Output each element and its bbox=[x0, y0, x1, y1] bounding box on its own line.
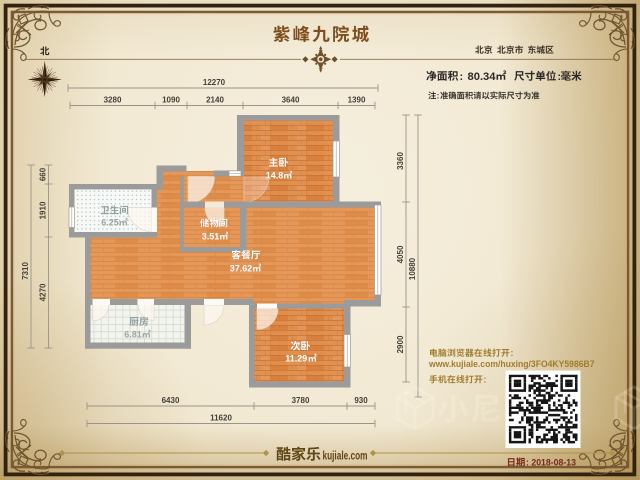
svg-text::: : bbox=[558, 71, 562, 83]
svg-text:80.34: 80.34 bbox=[468, 71, 497, 83]
svg-text:12270: 12270 bbox=[203, 78, 226, 87]
svg-text:1910: 1910 bbox=[39, 201, 48, 219]
svg-text:6.25: 6.25 bbox=[101, 218, 119, 228]
svg-text:: 2018-08-13: : 2018-08-13 bbox=[526, 457, 576, 468]
svg-text:1390: 1390 bbox=[348, 96, 366, 105]
svg-text:4270: 4270 bbox=[39, 283, 48, 301]
svg-text:660: 660 bbox=[39, 167, 48, 181]
svg-text:3780: 3780 bbox=[292, 396, 310, 405]
svg-text:10880: 10880 bbox=[408, 257, 417, 280]
svg-text:6.81: 6.81 bbox=[124, 330, 142, 340]
svg-text:37.62: 37.62 bbox=[230, 264, 253, 274]
svg-text:7310: 7310 bbox=[21, 262, 30, 280]
svg-text:www.kujiale.com/huxing/3FO4KY5: www.kujiale.com/huxing/3FO4KY5986B7 bbox=[428, 359, 594, 370]
svg-text:3640: 3640 bbox=[282, 96, 300, 105]
svg-text::: : bbox=[460, 71, 464, 83]
svg-text::: : bbox=[484, 375, 487, 385]
svg-text:6430: 6430 bbox=[162, 396, 180, 405]
svg-text:11.29: 11.29 bbox=[285, 354, 307, 364]
svg-text:3280: 3280 bbox=[104, 96, 122, 105]
svg-text:3.51: 3.51 bbox=[202, 232, 220, 242]
svg-text:3360: 3360 bbox=[396, 152, 405, 170]
svg-text:2140: 2140 bbox=[206, 96, 224, 105]
svg-text:2900: 2900 bbox=[396, 335, 405, 353]
svg-text:930: 930 bbox=[354, 396, 368, 405]
svg-text:1090: 1090 bbox=[162, 96, 180, 105]
svg-text::: : bbox=[511, 348, 514, 358]
svg-text:14.8: 14.8 bbox=[266, 171, 284, 181]
svg-text:4050: 4050 bbox=[396, 245, 405, 263]
svg-text:kujiale.com: kujiale.com bbox=[323, 449, 368, 463]
svg-text:11620: 11620 bbox=[210, 414, 232, 423]
svg-text::: : bbox=[437, 91, 440, 101]
